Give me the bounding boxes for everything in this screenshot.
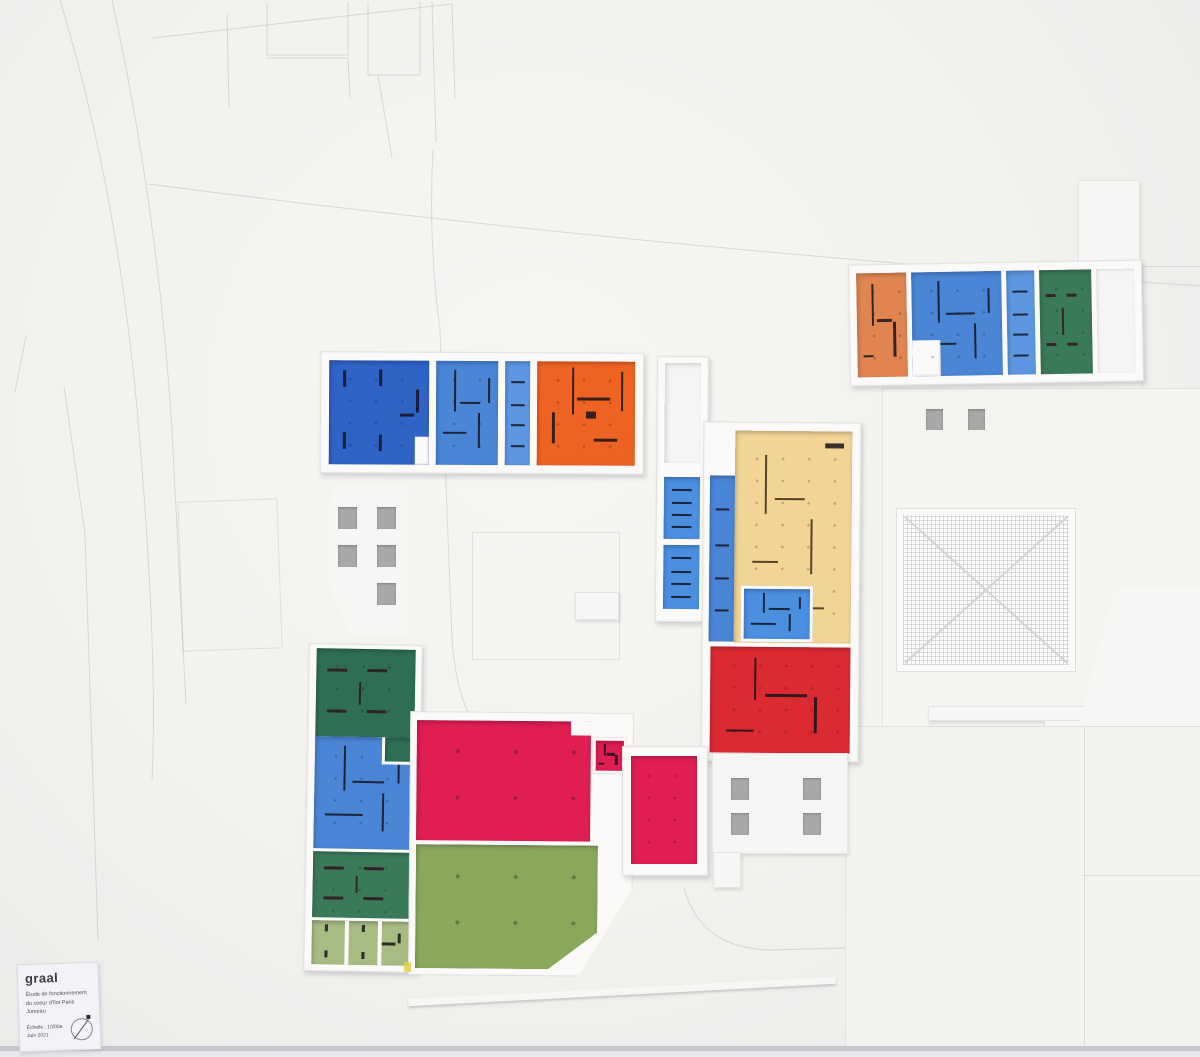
- plan-unit-green-forest: [312, 851, 412, 919]
- card-subtitle: Étude de fonctionnement du coeur d'îlot …: [25, 989, 92, 1017]
- card-title: graal: [25, 969, 91, 986]
- relief-stub: [713, 852, 741, 888]
- complex-west-wing: [303, 643, 423, 973]
- strip-cell-blue: [664, 477, 701, 539]
- strip-building: [655, 356, 709, 622]
- card-subtitle-line2: du coeur d'îlot Paris Jumeau: [26, 997, 93, 1016]
- window-square: [377, 507, 396, 529]
- window-square: [803, 778, 821, 800]
- window-square: [803, 813, 821, 835]
- room-divider: [377, 921, 382, 965]
- white-step: [571, 721, 591, 735]
- plan-unit-empty: [1096, 269, 1136, 374]
- plan-unit-sage-rooms: [311, 920, 411, 966]
- plan-unit-salmon: [856, 273, 908, 378]
- plan-unit-orange: [537, 361, 636, 466]
- stain-dot: [404, 962, 411, 972]
- relief-ledge: [928, 706, 1094, 721]
- plan-unit-green: [1039, 269, 1093, 374]
- strip-cell-blue: [663, 545, 700, 609]
- building-northeast: [848, 259, 1144, 386]
- window-square: [731, 813, 749, 835]
- plan-unit-red: [710, 646, 851, 753]
- plan-unit-blue-dark: [329, 360, 430, 465]
- white-step: [912, 340, 941, 376]
- window-square: [377, 545, 396, 567]
- plan-unit-blue-mid: [436, 361, 499, 465]
- plan-unit-green-dark: [315, 648, 416, 738]
- north-marker: [86, 1015, 90, 1019]
- four-window-building: [712, 753, 848, 854]
- plan-unit-blue-strip: [709, 475, 735, 641]
- parcel-outline: [177, 498, 282, 651]
- plan-unit-crimson: [631, 756, 697, 864]
- model-base-face: [0, 1051, 1200, 1057]
- five-window-building: [318, 486, 408, 634]
- window-square: [926, 409, 943, 430]
- plan-unit-green-tab: [382, 737, 414, 765]
- plan-unit-blue-light: [1006, 270, 1036, 374]
- plate-seam: [1084, 875, 1200, 876]
- hall-olive: [415, 844, 598, 970]
- building-center-east: [701, 421, 862, 762]
- building-red-small: [622, 746, 708, 876]
- bottom-right-plate: [845, 726, 1200, 1050]
- window-square: [338, 545, 357, 567]
- architectural-model-photo: graal Étude de fonctionnement du coeur d…: [0, 0, 1200, 1057]
- strip-cell-white: [664, 363, 701, 463]
- room-divider: [344, 921, 349, 965]
- atrium-roof: [897, 509, 1075, 671]
- white-notch: [415, 437, 429, 465]
- curb-bar: [408, 977, 836, 1006]
- plan-unit-blue-light: [505, 361, 531, 465]
- complex-halls-wing: [408, 711, 634, 977]
- hall-crimson: [416, 720, 591, 842]
- window-square: [377, 583, 396, 605]
- window-square: [338, 507, 357, 529]
- model-label-card: graal Étude de fonctionnement du coeur d…: [16, 962, 101, 1053]
- window-square: [968, 409, 985, 430]
- plate-seam: [1084, 727, 1085, 1049]
- courtyard-box: [575, 592, 619, 620]
- plan-unit-blue-mid: [911, 271, 1003, 377]
- building-northwest: [320, 351, 645, 475]
- plan-unit-blue-inset: [741, 586, 813, 643]
- atrium-ridge-icon: [903, 515, 1069, 665]
- window-square: [731, 778, 749, 800]
